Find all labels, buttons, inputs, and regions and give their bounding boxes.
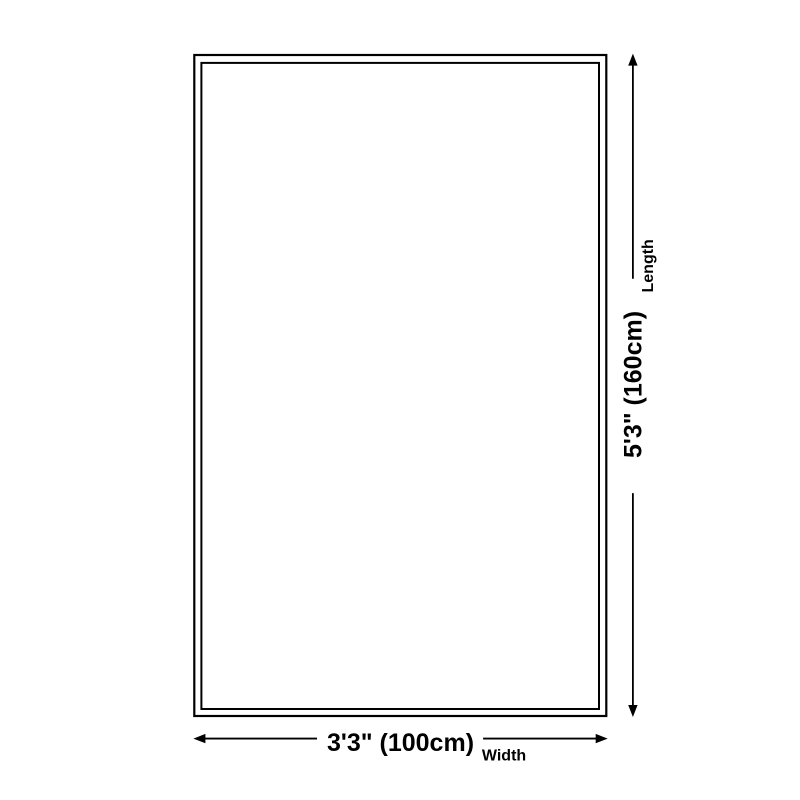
svg-text:5'3" (160cm): 5'3" (160cm) (620, 311, 648, 458)
svg-text:Length: Length (640, 239, 657, 292)
svg-text:3'3" (100cm): 3'3" (100cm) (327, 729, 474, 757)
svg-text:Width: Width (482, 747, 526, 764)
